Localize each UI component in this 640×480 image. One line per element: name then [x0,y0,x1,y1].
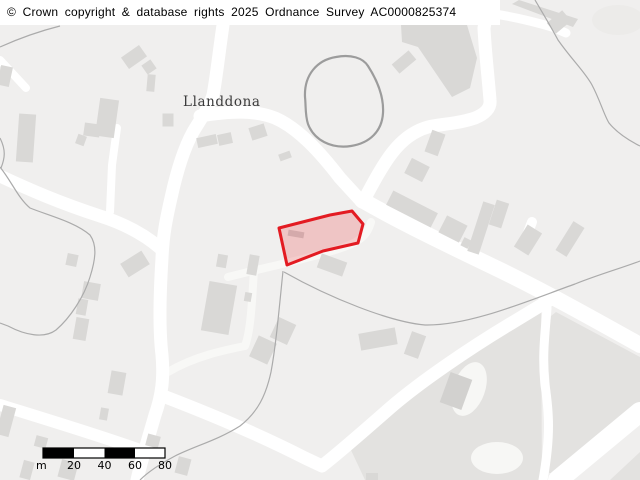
scale-tick-80: 80 [158,459,172,472]
copyright-text: © Crown copyright & database rights 2025… [7,5,456,19]
scale-tick-20: 20 [67,459,81,472]
scale-tick-60: 60 [128,459,142,472]
copyright-banner: © Crown copyright & database rights 2025… [0,0,500,25]
scale-tick-40: 40 [98,459,112,472]
map-canvas[interactable]: Llanddona © Crown copyright & database r… [0,0,640,480]
map-viewport[interactable]: Llanddona © Crown copyright & database r… [0,0,640,480]
scale-unit-label: m [36,459,47,472]
place-label: Llanddona [183,94,261,110]
